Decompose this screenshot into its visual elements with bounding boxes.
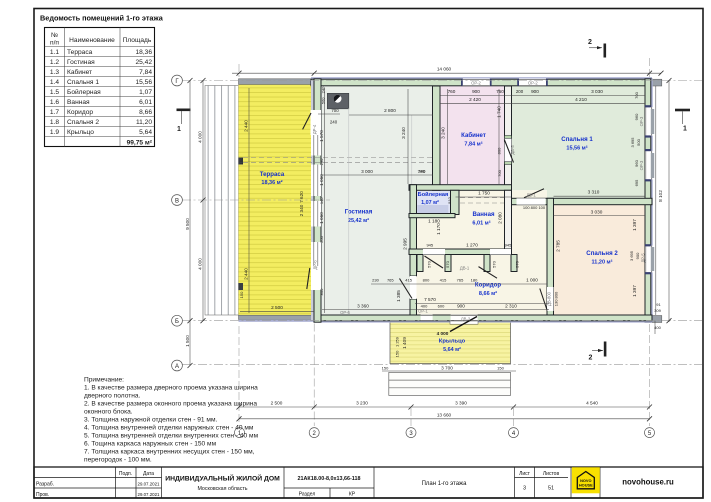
svg-text:945: 945 <box>505 242 512 247</box>
svg-text:309: 309 <box>654 308 661 313</box>
svg-text:1 385: 1 385 <box>396 290 401 302</box>
svg-text:340: 340 <box>419 169 426 174</box>
svg-text:14 060: 14 060 <box>437 67 452 72</box>
svg-text:800: 800 <box>423 278 430 283</box>
svg-text:1.9: 1.9 <box>50 129 59 136</box>
svg-text:695: 695 <box>634 179 639 186</box>
svg-text:1.7: 1.7 <box>50 109 59 116</box>
svg-text:2 310: 2 310 <box>505 304 517 309</box>
svg-text:1 000: 1 000 <box>526 278 538 283</box>
svg-text:Бойлерная: Бойлерная <box>418 191 449 198</box>
svg-text:4 540: 4 540 <box>586 401 598 406</box>
svg-text:415: 415 <box>440 278 447 283</box>
svg-text:415: 415 <box>405 278 412 283</box>
svg-text:5,64: 5,64 <box>139 129 152 136</box>
svg-text:3 700: 3 700 <box>441 365 453 370</box>
svg-text:1.2: 1.2 <box>50 59 59 66</box>
svg-text:150: 150 <box>239 291 244 298</box>
svg-text:765: 765 <box>457 278 464 283</box>
svg-text:1.4: 1.4 <box>50 79 59 86</box>
svg-text:Ванная: Ванная <box>67 99 90 106</box>
svg-text:2 500: 2 500 <box>271 305 283 310</box>
svg-text:3 030: 3 030 <box>591 210 603 215</box>
svg-text:29.07.2021: 29.07.2021 <box>138 492 161 497</box>
svg-text:Спальня 2: Спальня 2 <box>586 250 618 257</box>
svg-text:1 740: 1 740 <box>497 106 502 118</box>
svg-text:ИНДИВИДУАЛЬНЫЙ ЖИЛОЙ ДОМ: ИНДИВИДУАЛЬНЫЙ ЖИЛОЙ ДОМ <box>165 474 280 483</box>
svg-text:1: 1 <box>683 126 687 133</box>
svg-text:Терраса: Терраса <box>260 171 285 178</box>
svg-text:200: 200 <box>319 235 324 242</box>
svg-text:Коридор: Коридор <box>67 109 93 116</box>
svg-text:15,56 м²: 15,56 м² <box>566 145 587 152</box>
svg-text:ДВ-5: ДВ-5 <box>510 145 515 155</box>
svg-text:3 695: 3 695 <box>629 250 634 261</box>
svg-text:100 800 100: 100 800 100 <box>523 205 546 210</box>
svg-text:1 060: 1 060 <box>319 174 324 186</box>
svg-text:HOUSE: HOUSE <box>579 483 593 488</box>
svg-text:3 030: 3 030 <box>591 89 603 94</box>
svg-text:51: 51 <box>548 486 554 492</box>
svg-text:Разраб.: Разраб. <box>36 482 54 488</box>
svg-text:3. Толщина наружной отделки ст: 3. Толщина наружной отделки стен - 91 мм… <box>84 416 217 424</box>
svg-text:6,01: 6,01 <box>139 99 152 106</box>
svg-text:2 420: 2 420 <box>469 97 481 102</box>
svg-text:ДВ-1: ДВ-1 <box>526 193 536 198</box>
svg-text:4 000: 4 000 <box>198 258 203 270</box>
svg-text:400: 400 <box>654 325 661 330</box>
svg-text:3 000: 3 000 <box>361 169 373 174</box>
svg-text:Крыльцо: Крыльцо <box>67 129 94 136</box>
svg-text:91: 91 <box>656 302 661 307</box>
svg-text:А: А <box>175 364 179 370</box>
svg-text:КР: КР <box>349 492 356 498</box>
svg-text:Бойлерная: Бойлерная <box>67 88 101 96</box>
svg-text:п/п: п/п <box>50 40 59 47</box>
svg-text:700: 700 <box>497 169 502 176</box>
svg-text:900: 900 <box>635 252 640 259</box>
svg-text:Коридор: Коридор <box>475 282 502 289</box>
svg-text:ОР-6: ОР-6 <box>340 310 350 315</box>
svg-text:3 240: 3 240 <box>401 127 406 139</box>
svg-text:1.5: 1.5 <box>50 89 59 96</box>
svg-text:3 390: 3 390 <box>455 401 467 406</box>
svg-text:180: 180 <box>471 278 478 283</box>
svg-text:ДВ-2: ДВ-2 <box>461 316 471 321</box>
svg-text:1,07: 1,07 <box>139 89 152 96</box>
svg-text:Наименование: Наименование <box>69 37 115 44</box>
svg-text:570: 570 <box>427 260 432 267</box>
svg-text:600: 600 <box>438 304 445 309</box>
svg-text:25,42 м²: 25,42 м² <box>348 217 369 224</box>
svg-text:5,64 м²: 5,64 м² <box>443 347 461 353</box>
svg-text:8 102: 8 102 <box>658 190 663 202</box>
svg-text:1 060: 1 060 <box>319 212 324 224</box>
svg-text:900: 900 <box>457 304 465 309</box>
svg-text:1 397: 1 397 <box>632 285 637 297</box>
svg-text:1 270: 1 270 <box>466 242 478 247</box>
svg-text:Лист: Лист <box>519 471 531 477</box>
svg-text:760: 760 <box>448 89 456 94</box>
svg-text:Ведомость помещений 1-го этажа: Ведомость помещений 1-го этажа <box>40 14 164 23</box>
svg-text:500: 500 <box>636 138 641 145</box>
svg-text:800: 800 <box>497 147 502 154</box>
svg-text:1.1: 1.1 <box>50 49 59 56</box>
svg-text:4. Толщина внутренней отделки: 4. Толщина внутренней отделки наружных с… <box>84 424 254 432</box>
svg-text:2: 2 <box>589 355 593 362</box>
svg-text:945: 945 <box>426 242 433 247</box>
svg-text:21АК18.00-8,0х13,66-118: 21АК18.00-8,0х13,66-118 <box>298 476 361 482</box>
svg-text:4 210: 4 210 <box>575 97 587 102</box>
svg-text:1 500: 1 500 <box>185 335 190 347</box>
svg-text:200: 200 <box>516 89 524 94</box>
svg-text:1 750: 1 750 <box>478 190 490 195</box>
svg-text:2 080: 2 080 <box>498 212 503 224</box>
svg-text:7,84 м²: 7,84 м² <box>464 141 482 148</box>
svg-text:ДР-6: ДР-6 <box>313 260 318 270</box>
svg-text:перегородок - 100 мм.: перегородок - 100 мм. <box>84 457 152 464</box>
svg-text:910: 910 <box>447 196 452 203</box>
svg-text:1 170: 1 170 <box>436 223 441 235</box>
svg-text:оконного блока.: оконного блока. <box>84 408 133 416</box>
svg-text:1.8: 1.8 <box>50 119 59 126</box>
svg-text:6,01 м²: 6,01 м² <box>472 220 490 227</box>
svg-text:План 1-го этажа: План 1-го этажа <box>422 481 467 487</box>
svg-text:240: 240 <box>330 120 338 125</box>
svg-text:8,66 м²: 8,66 м² <box>479 290 497 297</box>
svg-text:150: 150 <box>239 157 244 164</box>
svg-text:ДР-5: ДР-5 <box>641 253 646 263</box>
svg-text:3: 3 <box>523 486 526 492</box>
svg-text:Спальня 2: Спальня 2 <box>67 119 99 126</box>
svg-text:240: 240 <box>320 86 325 93</box>
svg-text:9 500: 9 500 <box>185 218 190 230</box>
svg-text:Спальня 1: Спальня 1 <box>561 136 593 143</box>
svg-text:18,36: 18,36 <box>135 49 152 56</box>
svg-text:1,07 м²: 1,07 м² <box>421 200 439 206</box>
svg-text:2: 2 <box>588 39 592 46</box>
svg-text:ДВ-800: ДВ-800 <box>547 291 552 306</box>
svg-text:дверного полотна.: дверного полотна. <box>84 393 141 400</box>
svg-text:В: В <box>175 199 179 205</box>
svg-text:2. В качестве размера оконного: 2. В качестве размера оконного проема ук… <box>84 401 257 408</box>
svg-text:290: 290 <box>319 158 324 165</box>
svg-text:760: 760 <box>496 89 504 94</box>
svg-text:1 397: 1 397 <box>632 219 637 231</box>
svg-text:3 240: 3 240 <box>441 127 446 139</box>
svg-text:Дата: Дата <box>143 471 154 477</box>
svg-text:Гостиная: Гостиная <box>67 59 95 66</box>
svg-text:150: 150 <box>497 365 504 370</box>
svg-text:1 259: 1 259 <box>395 336 400 347</box>
svg-text:1. В качестве размера дверного: 1. В качестве размера дверного проема ук… <box>84 385 258 392</box>
svg-text:99,75 м²: 99,75 м² <box>127 140 153 147</box>
svg-text:3 310: 3 310 <box>588 190 600 195</box>
svg-text:1: 1 <box>177 126 181 133</box>
svg-text:Крыльцо: Крыльцо <box>439 339 466 345</box>
svg-text:1 409: 1 409 <box>402 337 407 349</box>
svg-text:ОР-3: ОР-3 <box>639 160 644 170</box>
svg-text:765: 765 <box>387 278 394 283</box>
svg-text:Кабинет: Кабинет <box>461 132 486 139</box>
svg-text:900: 900 <box>472 89 480 94</box>
svg-text:11,20 м²: 11,20 м² <box>592 259 613 266</box>
svg-text:1.6: 1.6 <box>50 99 59 106</box>
svg-text:130 800: 130 800 <box>554 291 559 306</box>
svg-text:Московская область: Московская область <box>197 486 247 492</box>
svg-text:4 000: 4 000 <box>198 131 203 143</box>
svg-text:1 570: 1 570 <box>319 130 324 142</box>
svg-text:ОР-1: ОР-1 <box>418 309 428 314</box>
svg-text:№: № <box>51 32 58 39</box>
svg-text:2 785: 2 785 <box>556 240 561 252</box>
svg-text:Примечание:: Примечание: <box>84 377 124 384</box>
svg-text:7 620: 7 620 <box>299 191 304 203</box>
svg-text:2 995: 2 995 <box>403 238 408 250</box>
svg-text:Б: Б <box>175 319 179 325</box>
svg-text:1 180: 1 180 <box>428 219 440 224</box>
svg-text:ОР-2: ОР-2 <box>471 80 481 85</box>
svg-text:570: 570 <box>445 260 450 267</box>
svg-text:13 660: 13 660 <box>437 412 452 417</box>
svg-text:6. Тощина каркаса наружных сте: 6. Тощина каркаса наружных стен - 150 мм <box>84 441 217 448</box>
svg-text:2 440: 2 440 <box>244 268 249 280</box>
svg-text:800: 800 <box>319 288 324 295</box>
svg-text:Ванная: Ванная <box>472 211 495 218</box>
svg-text:570: 570 <box>515 260 520 267</box>
svg-text:560: 560 <box>320 97 325 104</box>
svg-text:11,20: 11,20 <box>136 119 152 126</box>
svg-text:700: 700 <box>331 108 339 113</box>
svg-text:3 230: 3 230 <box>356 401 368 406</box>
svg-text:Листов: Листов <box>543 471 560 477</box>
svg-text:25,42: 25,42 <box>135 59 152 66</box>
svg-text:Подп.: Подп. <box>119 471 132 477</box>
svg-text:140: 140 <box>319 197 324 204</box>
svg-text:ДВ-1: ДВ-1 <box>460 266 470 271</box>
svg-text:7. Толщина каркаса внутренних: 7. Толщина каркаса внутренних несущих ст… <box>84 449 255 456</box>
svg-text:2 340: 2 340 <box>299 204 304 216</box>
svg-text:2 500: 2 500 <box>271 401 283 406</box>
svg-text:2 440: 2 440 <box>244 120 249 132</box>
svg-text:ОР-2: ОР-2 <box>528 80 538 85</box>
svg-text:15,56: 15,56 <box>135 79 152 86</box>
svg-text:5. Толщина внутренней отделки: 5. Толщина внутренней отделки внутренних… <box>84 432 259 440</box>
svg-text:29.07.2021: 29.07.2021 <box>138 481 161 486</box>
svg-text:Спальня 1: Спальня 1 <box>67 79 99 86</box>
svg-text:18,36 м²: 18,36 м² <box>261 179 282 186</box>
svg-text:570: 570 <box>492 260 497 267</box>
svg-text:4 000: 4 000 <box>437 331 449 336</box>
svg-text:3 360: 3 360 <box>357 304 369 309</box>
svg-text:Раздел: Раздел <box>299 492 316 498</box>
svg-text:Площадь: Площадь <box>123 37 152 44</box>
svg-text:novohouse.ru: novohouse.ru <box>622 478 674 487</box>
svg-text:1.3: 1.3 <box>50 69 59 76</box>
svg-text:3 695: 3 695 <box>630 137 635 148</box>
svg-text:7,84: 7,84 <box>139 69 152 76</box>
svg-text:Кабинет: Кабинет <box>67 68 92 76</box>
svg-text:ОР-3: ОР-3 <box>639 116 644 126</box>
svg-text:150: 150 <box>395 350 400 357</box>
svg-text:700: 700 <box>634 91 639 98</box>
svg-text:900: 900 <box>531 89 539 94</box>
svg-text:Терраса: Терраса <box>67 49 93 56</box>
svg-text:7 570: 7 570 <box>424 297 436 302</box>
svg-text:8,66: 8,66 <box>139 109 152 116</box>
svg-text:Пров.: Пров. <box>36 492 49 498</box>
svg-text:ДР-4: ДР-4 <box>312 124 317 134</box>
svg-text:2 800: 2 800 <box>384 108 396 113</box>
svg-text:150: 150 <box>382 365 389 370</box>
svg-text:230: 230 <box>372 278 379 283</box>
